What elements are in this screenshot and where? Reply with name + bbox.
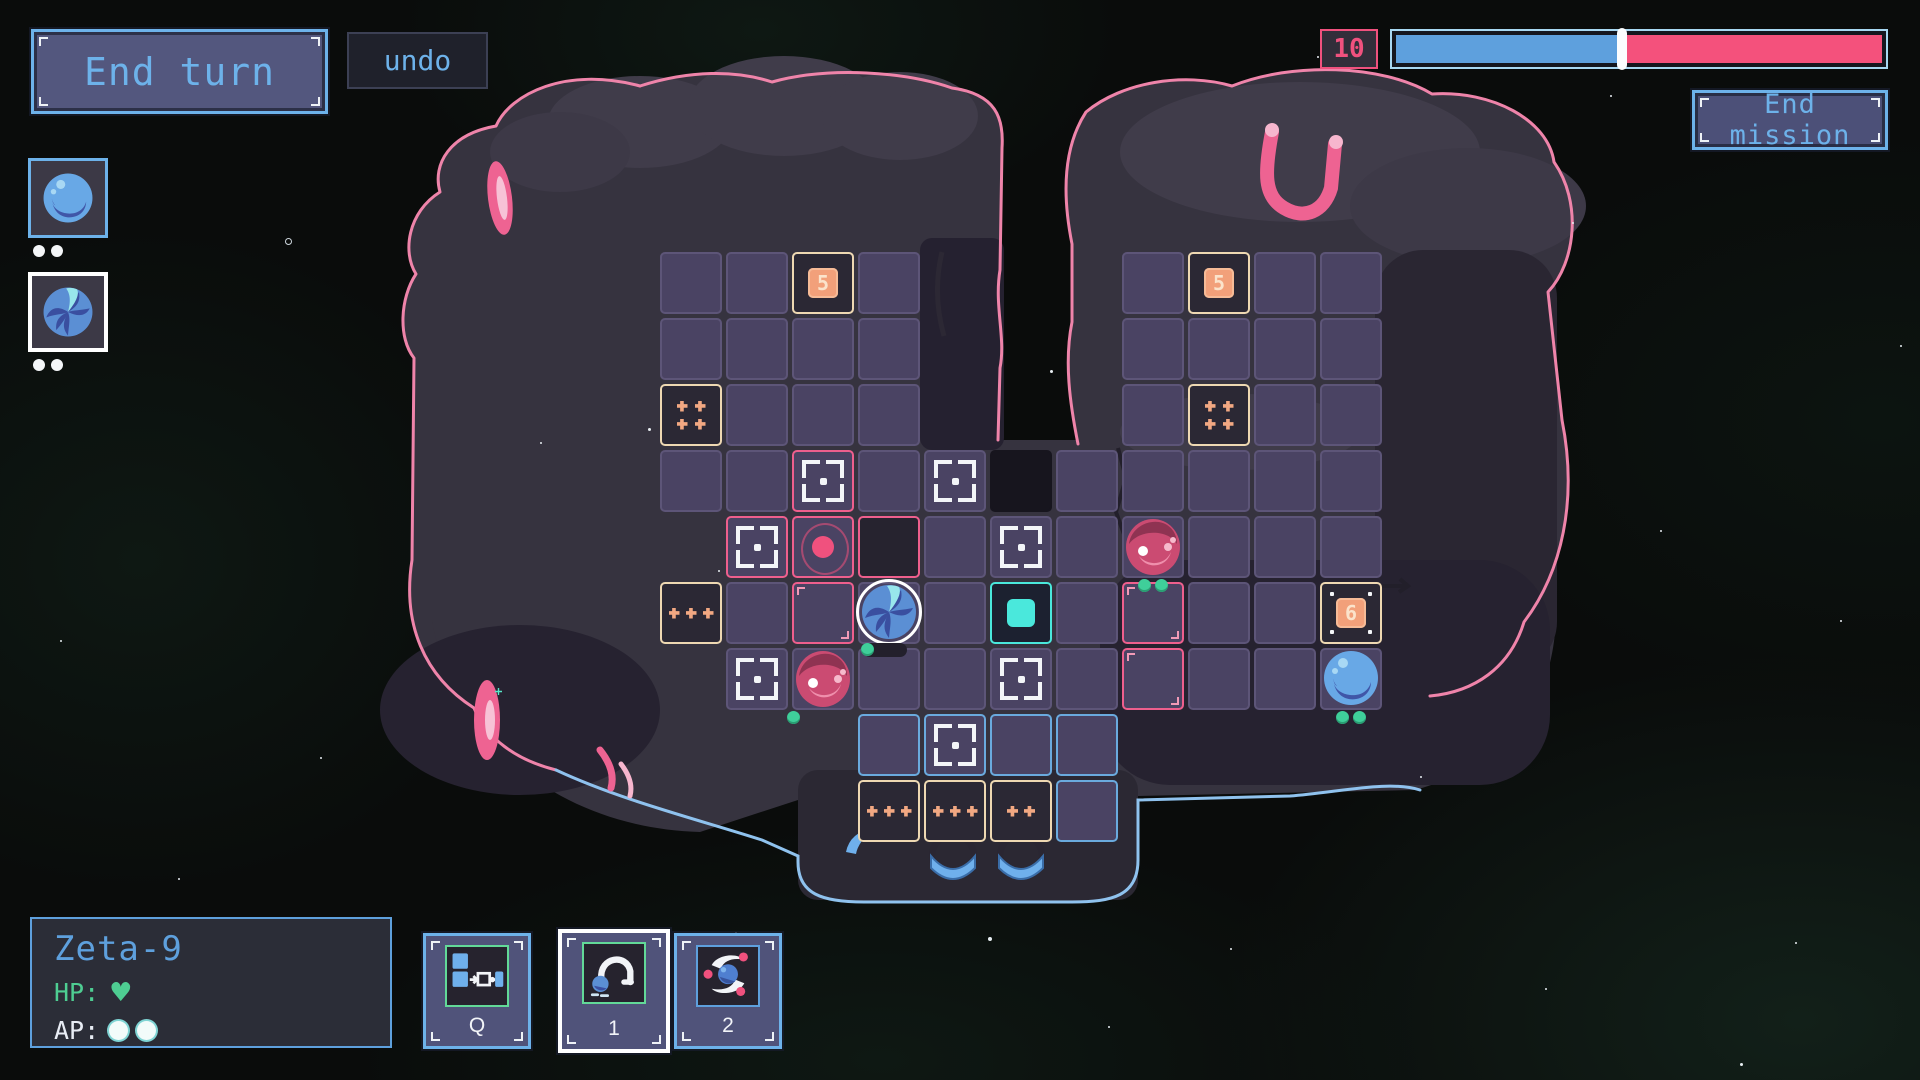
star (1610, 95, 1612, 97)
board-cell-c6-r3-plain[interactable] (1056, 450, 1118, 512)
ap-pips (109, 1021, 156, 1040)
star (60, 640, 62, 642)
star (178, 878, 180, 880)
board-cell-c8-r0-num[interactable]: 5 (1188, 252, 1250, 314)
board-cell-c1-r6-cross[interactable] (726, 648, 788, 710)
ability-key-label: Q (426, 1014, 528, 1038)
board-cell-c7-r2-plain[interactable] (1122, 384, 1184, 446)
hp-hearts: ♥ (109, 978, 132, 1007)
board-cell-c8-r4-plain[interactable] (1188, 516, 1250, 578)
unit-hp-pill (863, 643, 907, 657)
board-cell-c9-r2-plain[interactable] (1254, 384, 1316, 446)
board-cell-c1-r4-crossPink[interactable] (726, 516, 788, 578)
board-cell-c4-r4-plain[interactable] (924, 516, 986, 578)
board-cell-c0-r5-dots3[interactable] (660, 582, 722, 644)
corner-mark (765, 941, 774, 950)
planet-smooth-icon (39, 169, 97, 227)
board-cell-c2-r0-num[interactable]: 5 (792, 252, 854, 314)
board-cell-c4-r8-dots3[interactable] (924, 780, 986, 842)
ap-pip (109, 1021, 128, 1040)
board-cell-c9-r6-plain[interactable] (1254, 648, 1316, 710)
corner-mark (652, 938, 661, 947)
turn-counter-value: 10 (1333, 34, 1364, 64)
corner-mark (1700, 98, 1709, 107)
unit-enemy-pink-a[interactable] (791, 646, 855, 710)
roster-portrait-ally-blue[interactable] (28, 158, 108, 238)
board-cell-c10-r2-plain[interactable] (1320, 384, 1382, 446)
unit-pip (51, 245, 63, 257)
end-mission-button[interactable]: End mission (1692, 90, 1888, 150)
unit-hp-dots (1138, 579, 1168, 592)
orb-pink-sprite (1121, 514, 1185, 578)
star (285, 238, 292, 245)
star (1108, 1026, 1110, 1028)
board-cell-c8-r2-dots4[interactable] (1188, 384, 1250, 446)
ap-pip (137, 1021, 156, 1040)
board-cell-c10-r1-plain[interactable] (1320, 318, 1382, 380)
star (1420, 776, 1422, 778)
undo-button[interactable]: undo (347, 32, 488, 89)
board-cell-c10-r0-plain[interactable] (1320, 252, 1382, 314)
hop-arc-icon (582, 942, 646, 1004)
board-cell-c9-r1-plain[interactable] (1254, 318, 1316, 380)
ability-key-label: 1 (562, 1017, 666, 1041)
board-cell-c9-r5-plain[interactable] (1254, 582, 1316, 644)
end-turn-button[interactable]: End turn (31, 29, 328, 114)
hp-label: HP: (54, 978, 99, 1007)
bar-track (1396, 35, 1882, 63)
board-cell-c2-r2-plain[interactable] (792, 384, 854, 446)
star (1545, 988, 1547, 990)
unit-enemy-pink-b[interactable] (1121, 514, 1185, 578)
corner-mark (1871, 98, 1880, 107)
corner-mark (39, 37, 48, 46)
star (1317, 56, 1319, 58)
board-cell-c5-r4-cross[interactable] (990, 516, 1052, 578)
unit-pip (33, 359, 45, 371)
board-cell-c3-r1-plain[interactable] (858, 318, 920, 380)
ap-label: AP: (54, 1016, 99, 1045)
unit-ally-blue[interactable] (1319, 646, 1383, 710)
board-cell-c0-r0-plain[interactable] (660, 252, 722, 314)
tile-number: 5 (1204, 268, 1234, 298)
board-cell-c5-r7-blueCell[interactable] (990, 714, 1052, 776)
roster-pips (33, 359, 63, 371)
star (1900, 345, 1902, 347)
board-cell-c4-r7-blueCross[interactable] (924, 714, 986, 776)
unit-info-panel: Zeta-9 HP: ♥ AP: (30, 917, 392, 1048)
hp-heart-icon: ♥ (109, 978, 132, 1008)
star (988, 937, 992, 941)
board-cell-c7-r0-plain[interactable] (1122, 252, 1184, 314)
mission-progress-bar (1390, 29, 1888, 69)
board-cell-c6-r5-plain[interactable] (1056, 582, 1118, 644)
board-cell-c6-r7-blueCell[interactable] (1056, 714, 1118, 776)
board-cell-c9-r3-plain[interactable] (1254, 450, 1316, 512)
star (1660, 530, 1662, 532)
board-cell-c6-r6-plain[interactable] (1056, 648, 1118, 710)
board-cell-c5-r8-dots2[interactable] (990, 780, 1052, 842)
ability-button-q[interactable]: Q (423, 933, 531, 1049)
unit-name: Zeta-9 (54, 929, 390, 969)
turn-counter-badge: 10 (1320, 29, 1378, 69)
board-cell-c7-r6-pinkEmpty[interactable] (1122, 648, 1184, 710)
unit-hp-dots (1336, 711, 1366, 724)
planet-smooth-sprite (1319, 646, 1383, 710)
corner-mark (567, 938, 576, 947)
roster-portrait-zeta9[interactable] (28, 272, 108, 352)
tile-number: 5 (808, 268, 838, 298)
corner-mark (682, 941, 691, 950)
corner-mark (311, 97, 320, 106)
star (1050, 370, 1053, 373)
planet-swirl-icon (39, 283, 97, 341)
ap-row: AP: (54, 1016, 390, 1045)
board-cell-c3-r3-plain[interactable] (858, 450, 920, 512)
bar-blue-fill (1396, 35, 1622, 63)
orb-pink-sprite (791, 646, 855, 710)
board-cell-c1-r5-plain[interactable] (726, 582, 788, 644)
game-screen: 556 End turn undo 10 End mission Zeta-9 … (0, 0, 1920, 1080)
board-cell-c0-r3-plain[interactable] (660, 450, 722, 512)
corner-mark (431, 941, 440, 950)
board-cell-c4-r3-cross[interactable] (924, 450, 986, 512)
star (1740, 1063, 1743, 1066)
board-cell-c9-r4-plain[interactable] (1254, 516, 1316, 578)
end-turn-label: End turn (84, 50, 275, 94)
board-cell-c3-r0-plain[interactable] (858, 252, 920, 314)
board-cell-c3-r2-plain[interactable] (858, 384, 920, 446)
board-cell-c5-r3-hole[interactable] (990, 450, 1052, 512)
unit-pip (33, 245, 45, 257)
board-cell-c6-r4-plain[interactable] (1056, 516, 1118, 578)
board-cell-c1-r1-plain[interactable] (726, 318, 788, 380)
hp-row: HP: ♥ (54, 978, 390, 1007)
tile-number: 6 (1336, 598, 1366, 628)
board-cell-c2-r4-pinkCircle[interactable] (792, 516, 854, 578)
roster-pips (33, 245, 63, 257)
board-cell-c9-r0-plain[interactable] (1254, 252, 1316, 314)
board-cell-c5-r6-cross[interactable] (990, 648, 1052, 710)
board-cell-c2-r1-plain[interactable] (792, 318, 854, 380)
board-cell-c8-r6-plain[interactable] (1188, 648, 1250, 710)
board-cell-c8-r5-plain[interactable] (1188, 582, 1250, 644)
star (1795, 942, 1797, 944)
board-cell-c1-r2-plain[interactable] (726, 384, 788, 446)
board-cell-c8-r3-plain[interactable] (1188, 450, 1250, 512)
ability-key-label: 2 (677, 1014, 779, 1038)
corner-mark (514, 941, 523, 950)
board-cell-c3-r8-dots3[interactable] (858, 780, 920, 842)
board-cell-c1-r0-plain[interactable] (726, 252, 788, 314)
ability-button-2[interactable]: 2 (674, 933, 782, 1049)
board-cell-c4-r6-plain[interactable] (924, 648, 986, 710)
star (648, 428, 651, 431)
board-cell-c5-r5-cyanSquare[interactable] (990, 582, 1052, 644)
unit-hp-dots (787, 711, 800, 724)
bar-divider (1617, 28, 1627, 70)
corner-mark (39, 97, 48, 106)
star (1572, 222, 1574, 224)
board-cell-c1-r3-plain[interactable] (726, 450, 788, 512)
corner-mark (1700, 133, 1709, 142)
corner-mark (1871, 133, 1880, 142)
star (718, 570, 720, 572)
push-blocks-icon (445, 945, 509, 1007)
board-cell-c10-r5-num6[interactable]: 6 (1320, 582, 1382, 644)
planet-swirl-sprite (857, 580, 921, 644)
star (1840, 620, 1842, 622)
board-cell-c7-r3-plain[interactable] (1122, 450, 1184, 512)
board-cell-c2-r3-crossPink[interactable] (792, 450, 854, 512)
star (1230, 948, 1232, 950)
board-cell-c10-r4-plain[interactable] (1320, 516, 1382, 578)
board-cell-c3-r6-plain[interactable] (858, 648, 920, 710)
board-cell-c6-r8-blueCell[interactable] (1056, 780, 1118, 842)
board-cell-c2-r5-pinkEmpty[interactable] (792, 582, 854, 644)
ability-button-1[interactable]: 1 (558, 929, 670, 1053)
unit-pip (51, 359, 63, 371)
board-cell-c4-r5-plain[interactable] (924, 582, 986, 644)
board-cell-c10-r3-plain[interactable] (1320, 450, 1382, 512)
star (540, 442, 542, 444)
corner-mark (311, 37, 320, 46)
undo-label: undo (384, 44, 451, 77)
board-cell-c8-r1-plain[interactable] (1188, 318, 1250, 380)
board-cell-c3-r7-blueCell[interactable] (858, 714, 920, 776)
unit-zeta9[interactable] (857, 580, 921, 644)
end-mission-label: End mission (1701, 89, 1879, 151)
orbit-swirl-icon (696, 945, 760, 1007)
board-cell-c3-r4-darkPink[interactable] (858, 516, 920, 578)
board-cell-c0-r1-plain[interactable] (660, 318, 722, 380)
board-cell-c7-r1-plain[interactable] (1122, 318, 1184, 380)
board-cell-c0-r2-dots4[interactable] (660, 384, 722, 446)
star (320, 757, 322, 759)
